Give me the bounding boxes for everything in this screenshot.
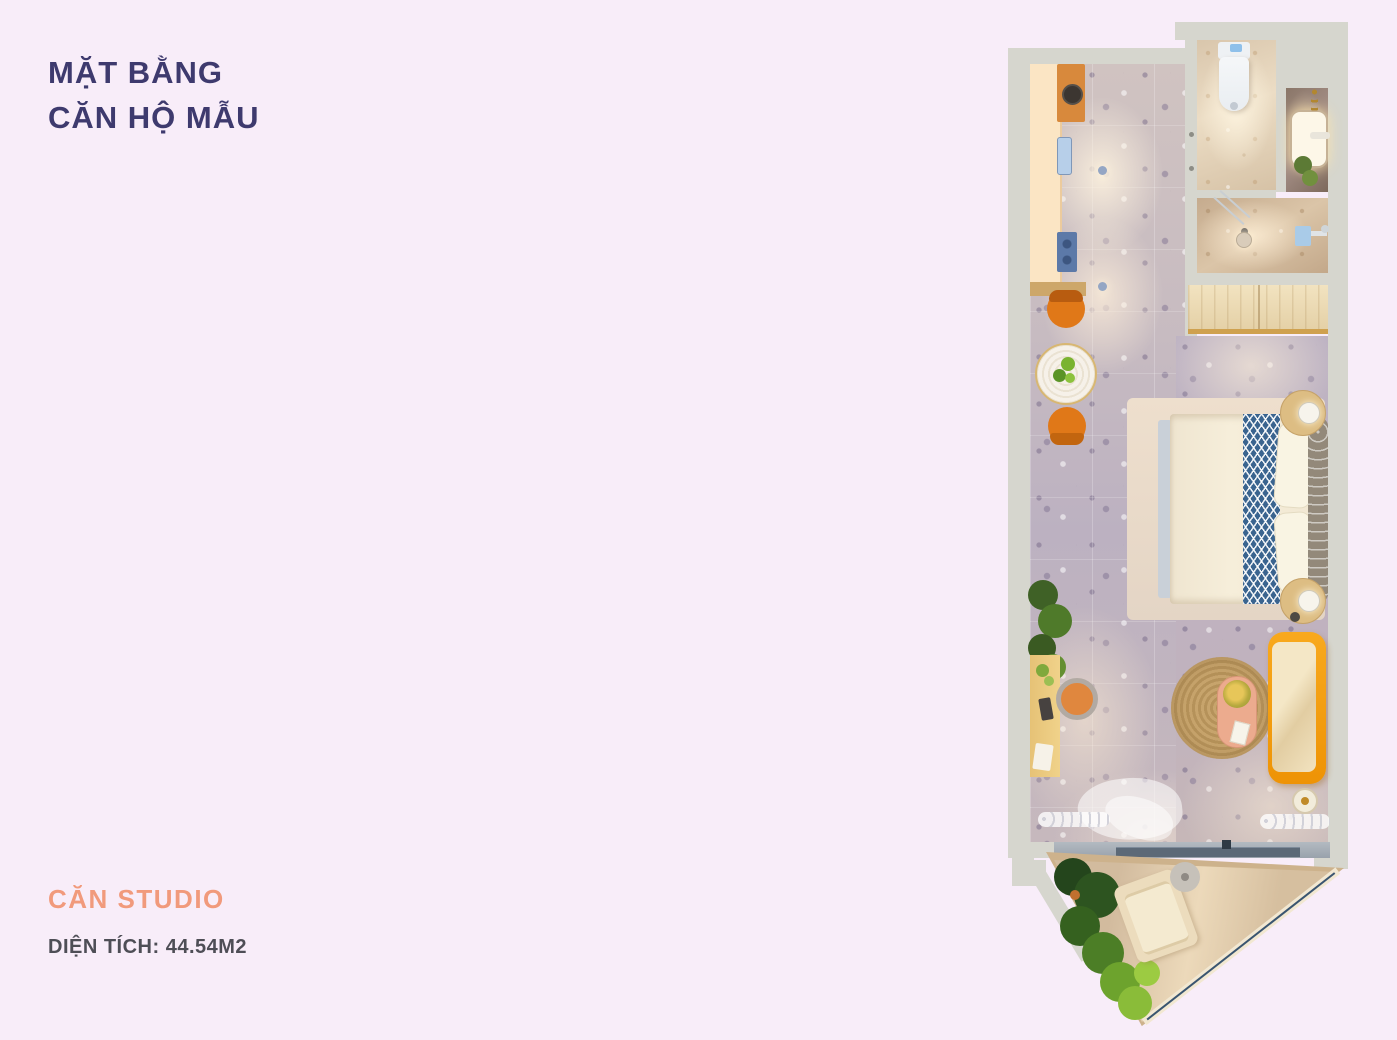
desk-flowers-1 xyxy=(1036,664,1049,677)
page-title: MẶT BẰNG CĂN HỘ MẪU xyxy=(48,50,260,140)
table-plant-leaf-3 xyxy=(1065,373,1075,383)
nightstand-lamp-top xyxy=(1298,402,1320,424)
door-hinge-2 xyxy=(1189,166,1194,171)
dining-chair-bottom-back xyxy=(1050,433,1084,445)
table-plant-leaf-1 xyxy=(1061,357,1075,371)
kitchen-pot xyxy=(1062,84,1083,105)
page-title-line2: CĂN HỘ MẪU xyxy=(48,100,260,135)
desk-flowers-2 xyxy=(1044,676,1054,686)
page: { "page": { "background_color": "#f8edf9… xyxy=(0,0,1397,1040)
table-plant-leaf-2 xyxy=(1053,369,1066,382)
balcony-side-table-dot xyxy=(1181,873,1189,881)
wall-top-main xyxy=(1008,48,1192,64)
dining-chair-top-back xyxy=(1049,290,1083,302)
door-hinge-1 xyxy=(1189,132,1194,137)
shower-mixer xyxy=(1295,226,1311,246)
nightstand-lamp-bottom xyxy=(1298,590,1320,612)
balcony-planter-pot xyxy=(1070,890,1080,900)
wall-shower-wardrobe xyxy=(1178,273,1328,285)
kitchen-sink xyxy=(1057,137,1072,175)
vanity-plant-leaf-2 xyxy=(1302,170,1318,186)
wardrobe-door-divider xyxy=(1258,285,1260,331)
wardrobe-trim xyxy=(1188,329,1328,334)
unit-type-label: CĂN STUDIO xyxy=(48,884,225,915)
curtain-bunch-left xyxy=(1038,812,1110,827)
bed-runner-blue xyxy=(1243,414,1280,604)
nightstand-accessory xyxy=(1290,612,1300,622)
floorplan-render xyxy=(1008,22,1348,1034)
kitchen-stove xyxy=(1057,232,1077,272)
wall-above-vanity xyxy=(1276,40,1328,90)
wardrobe-cabinet xyxy=(1188,285,1328,331)
coffee-table-plant xyxy=(1223,680,1251,708)
wall-right xyxy=(1328,22,1348,868)
dining-chair-top xyxy=(1047,290,1085,328)
balcony-plant-6 xyxy=(1118,986,1152,1020)
toilet-flush-button xyxy=(1230,102,1238,110)
shower-head xyxy=(1321,225,1329,233)
balcony-plant-7 xyxy=(1134,960,1160,986)
wall-bathroom-top xyxy=(1175,22,1348,40)
dining-table xyxy=(1035,343,1097,405)
ceiling-light-1 xyxy=(1098,166,1107,175)
floor-lamp xyxy=(1292,788,1318,814)
sliding-door-rail xyxy=(1116,847,1300,857)
unit-area-label: DIỆN TÍCH: 44.54M2 xyxy=(48,936,247,959)
wall-left xyxy=(1008,48,1030,858)
dining-chair-bottom xyxy=(1048,407,1086,445)
shower-drain xyxy=(1236,232,1252,248)
balcony-side-table xyxy=(1170,862,1200,892)
wall-toilet-shower xyxy=(1196,190,1276,198)
sofa xyxy=(1268,632,1326,784)
desk-chair xyxy=(1056,678,1098,720)
indoor-plant-leaf-2 xyxy=(1038,604,1072,638)
vanity-gold-hardware xyxy=(1311,88,1318,112)
wall-vanity-left xyxy=(1276,88,1286,192)
sofa-seat-cushion xyxy=(1272,642,1316,772)
vanity-faucet xyxy=(1310,132,1330,139)
toilet-screen xyxy=(1230,44,1242,52)
ceiling-light-2 xyxy=(1098,282,1107,291)
sliding-door-handle xyxy=(1222,840,1231,849)
desk-notepad xyxy=(1032,743,1053,771)
floor-lamp-bulb xyxy=(1301,797,1309,805)
curtain-bunch-right xyxy=(1260,814,1330,829)
page-title-line1: MẶT BẰNG xyxy=(48,55,223,90)
bed-gray-pillows xyxy=(1308,418,1328,602)
